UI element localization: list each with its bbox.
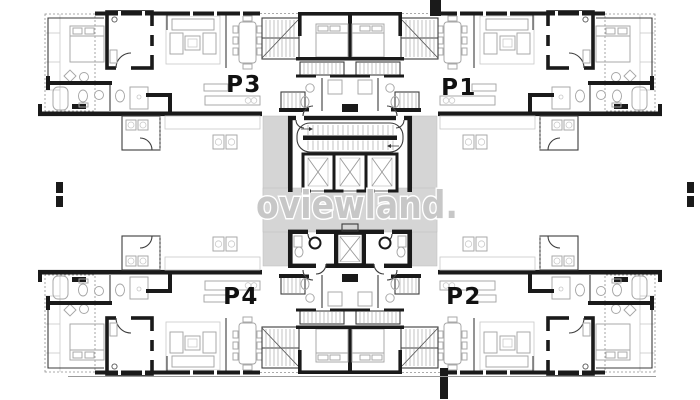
unit-label-p4: P4: [223, 284, 259, 310]
lower-core: [288, 224, 412, 274]
balcony-stair: [262, 18, 299, 59]
wardrobe-closet: [279, 92, 309, 112]
unit-label-p3: P3: [226, 72, 262, 98]
wing-quadrant-top-right: [350, 11, 662, 150]
unit-label-p1: P1: [441, 75, 477, 101]
section-marker-left: [56, 182, 63, 207]
core-bathroom-left: [294, 236, 321, 257]
wing-quadrant-bottom-right: [350, 236, 662, 375]
corridor-bar-wall: [38, 104, 262, 116]
floor-plan: P3 P1 P4 P2 oviewland.: [0, 0, 700, 400]
core-side-bedroom: [296, 12, 350, 78]
section-marker-right: [687, 182, 694, 207]
service-rooms: [122, 116, 260, 150]
service-elevator: [337, 234, 363, 265]
core-bathroom-right: [380, 236, 407, 257]
bathroom-strip: [50, 81, 172, 112]
unit-label-p2: P2: [446, 284, 482, 310]
wing-quadrant-bottom-left: [38, 236, 350, 375]
watermark-text: oviewland.: [256, 183, 458, 227]
wall-stub-top: [430, 0, 441, 16]
dining-table: [233, 16, 262, 69]
facade-wall: [95, 11, 298, 16]
living-room-set: [166, 13, 226, 68]
floor-plan-page: P3 P1 P4 P2 oviewland.: [0, 0, 700, 400]
scissor-stair: [297, 123, 403, 152]
wall-stub-bottom: [440, 368, 448, 399]
dressing-room: [107, 12, 154, 70]
